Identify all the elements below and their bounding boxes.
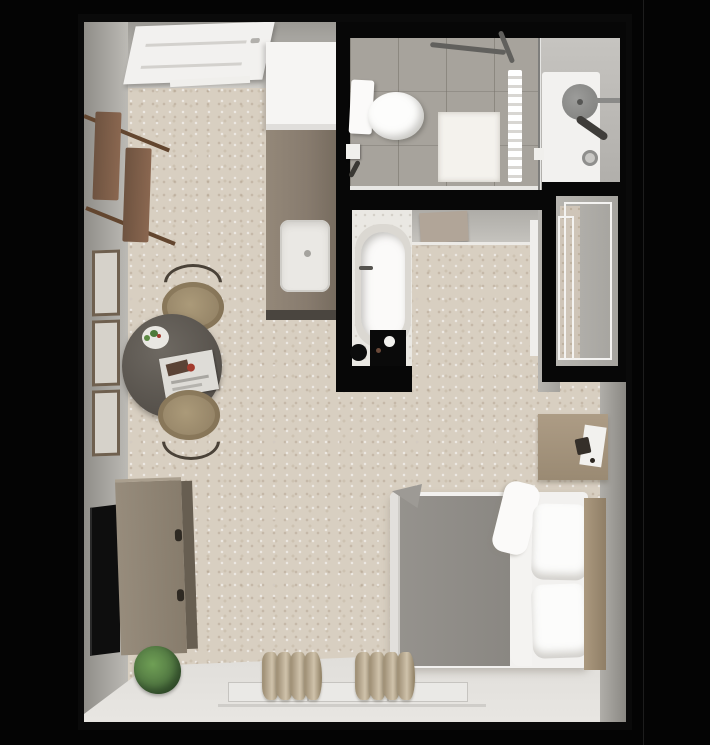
tv	[90, 504, 120, 656]
shower-drain	[582, 150, 598, 166]
bath-mat	[438, 112, 500, 182]
door-panel-line	[141, 62, 242, 68]
plate-red-detail	[157, 334, 161, 338]
right-margin-seam	[643, 0, 644, 745]
headboard	[584, 498, 606, 670]
bed-footboard	[390, 492, 400, 668]
mat-circle-detail	[384, 336, 395, 347]
interior-wall	[336, 190, 560, 210]
magazine-red-detail	[186, 363, 195, 372]
curtain-pleat	[304, 652, 322, 700]
apartment-plan	[78, 14, 632, 730]
plan-outer-wall-top	[78, 14, 632, 22]
tub-room-wall-bottom	[336, 366, 412, 392]
dresser-handle	[177, 589, 184, 601]
shower-glass-partition	[538, 38, 540, 190]
curtain-left-group	[262, 652, 318, 700]
plan-outer-wall-bottom	[78, 722, 632, 730]
nightstand-dot	[590, 458, 595, 463]
closet	[542, 182, 632, 382]
picture-frame-1	[92, 250, 120, 317]
plan-outer-wall-right	[626, 14, 632, 730]
wire-shelving-inner	[558, 216, 574, 360]
bathroom	[336, 14, 632, 210]
bathtub	[361, 232, 405, 340]
floorplan-render	[0, 0, 710, 745]
pillow-2	[531, 583, 590, 659]
tub-room-wall-left	[336, 210, 352, 392]
curtain-rail	[218, 704, 486, 707]
alcove-baseboard	[412, 242, 545, 245]
door-handle	[250, 38, 260, 43]
gray-duvet	[400, 496, 510, 666]
toilet-bowl	[368, 92, 424, 140]
coat-rack-board	[92, 112, 121, 201]
coat-rack-board	[122, 148, 151, 243]
closet-door-frame	[530, 220, 538, 356]
greens-detail	[144, 335, 150, 341]
picture-frame-3	[92, 390, 120, 457]
picture-frame-2	[92, 320, 120, 387]
mat-dot-detail	[376, 348, 381, 353]
tub-faucet	[359, 266, 373, 270]
pillow-1	[531, 503, 589, 580]
dresser-body	[115, 477, 187, 655]
upper-cabinet	[266, 42, 340, 130]
shower-head-center	[577, 99, 583, 105]
media-dresser	[115, 477, 201, 656]
magazine-text-line	[171, 375, 209, 385]
dining-chair-bottom	[158, 390, 220, 440]
floor-plant	[134, 646, 181, 694]
plan-outer-wall-left	[78, 14, 84, 730]
sink-faucet	[304, 250, 311, 257]
curtain-pleat	[397, 652, 415, 700]
toilet-paper-holder	[346, 144, 360, 159]
curtain-right-group	[355, 652, 411, 700]
shower-control	[534, 148, 544, 160]
counter-end-cap	[266, 310, 336, 320]
towel-rack	[508, 70, 522, 182]
dresser-handle	[175, 529, 182, 541]
nightstand-item	[574, 437, 591, 456]
shower-arm	[594, 98, 620, 103]
entry-door	[123, 22, 275, 85]
nightstand	[538, 414, 608, 480]
door-panel-line	[145, 40, 246, 46]
hamper	[350, 344, 367, 361]
open-door-panel	[419, 211, 469, 243]
